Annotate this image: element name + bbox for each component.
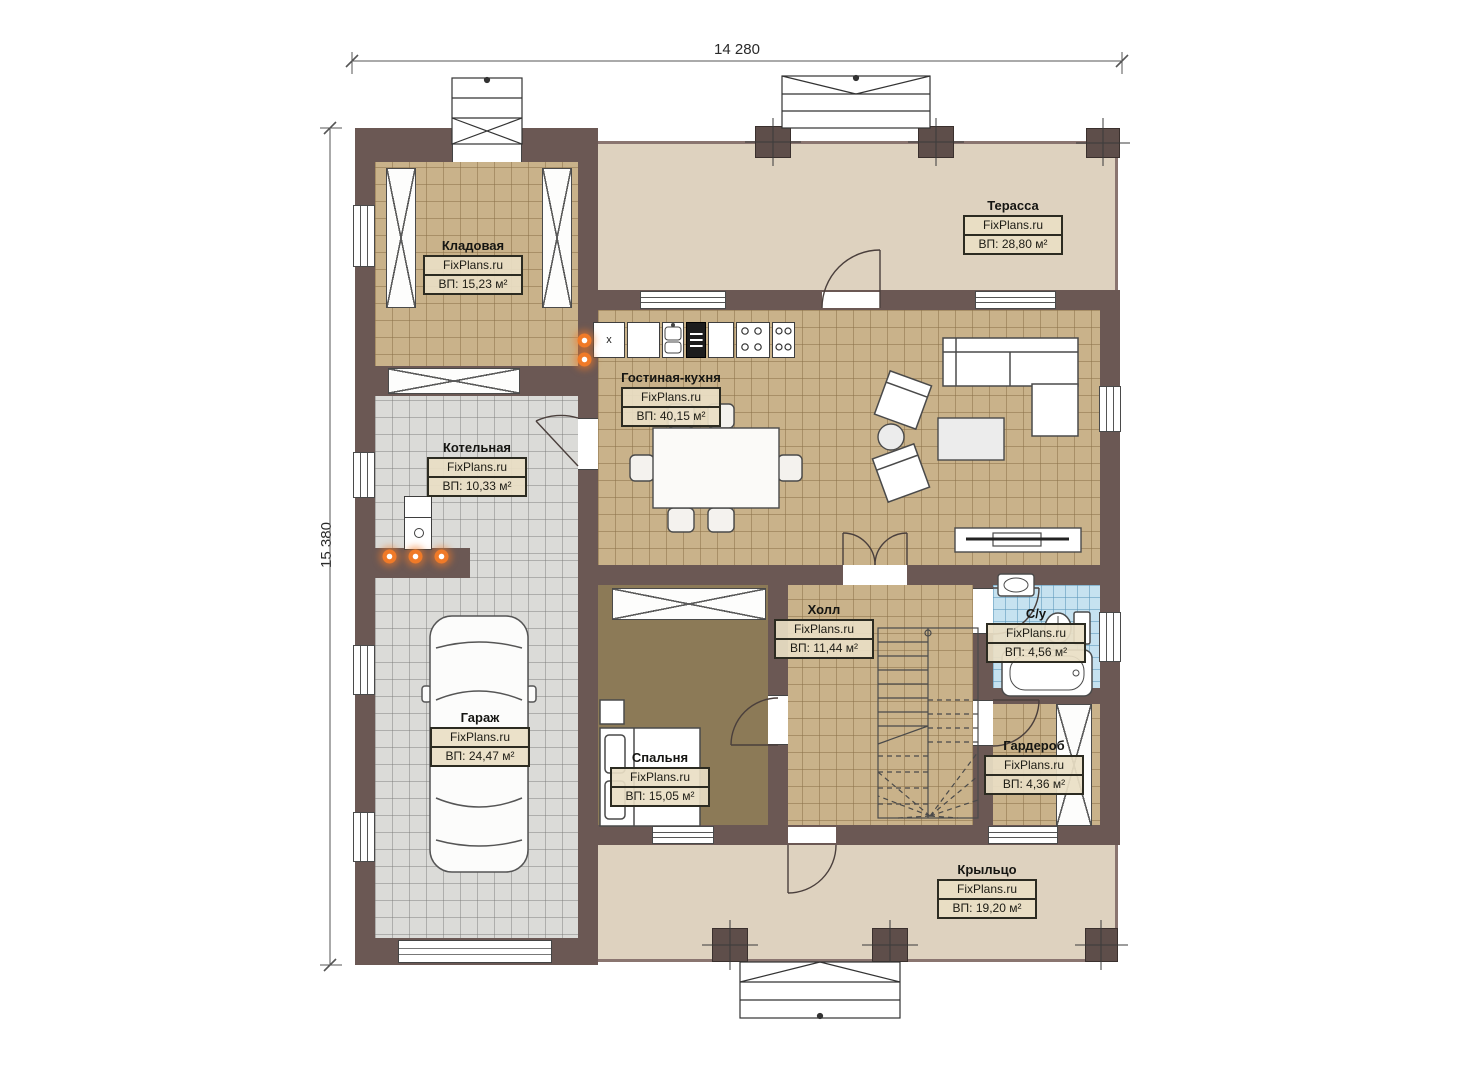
window bbox=[1099, 612, 1121, 662]
watermark: FixPlans.ru bbox=[988, 625, 1084, 644]
room-area: ВП: 40,15 м² bbox=[623, 408, 719, 425]
room-area: ВП: 28,80 м² bbox=[965, 236, 1061, 253]
porch-column bbox=[712, 928, 748, 962]
room-label-porch: Крыльцо FixPlans.ru ВП: 19,20 м² bbox=[925, 862, 1049, 919]
room-name: Крыльцо bbox=[957, 862, 1016, 877]
room-name: Спальня bbox=[632, 750, 688, 765]
cooktop-cabinet bbox=[736, 322, 770, 358]
window bbox=[640, 291, 726, 309]
watermark: FixPlans.ru bbox=[612, 769, 708, 788]
room-name: Гостиная-кухня bbox=[621, 370, 721, 385]
window bbox=[1099, 386, 1121, 432]
room-label-living-kitchen: Гостиная-кухня FixPlans.ru ВП: 40,15 м² bbox=[606, 370, 736, 427]
room-area: ВП: 11,44 м² bbox=[776, 640, 872, 657]
room-label-garage: Гараж FixPlans.ru ВП: 24,47 м² bbox=[420, 710, 540, 767]
door-opening-entry bbox=[788, 827, 836, 843]
door-opening-bedroom bbox=[768, 695, 788, 745]
watermark: FixPlans.ru bbox=[425, 257, 521, 276]
room-area: ВП: 19,20 м² bbox=[939, 900, 1035, 917]
dimension-height: 15 380 bbox=[318, 490, 336, 600]
room-name: Терасса bbox=[987, 198, 1039, 213]
room-area: ВП: 10,33 м² bbox=[429, 478, 525, 495]
room-name: Гардероб bbox=[1003, 738, 1064, 753]
terrace-parapet-right bbox=[1115, 141, 1118, 290]
window bbox=[353, 645, 375, 695]
room-name: С/у bbox=[1026, 606, 1046, 621]
garage-door-opening bbox=[398, 940, 552, 963]
watermark: FixPlans.ru bbox=[939, 881, 1035, 900]
watermark: FixPlans.ru bbox=[776, 621, 872, 640]
exterior-steps-top-center bbox=[782, 76, 930, 129]
room-area: ВП: 4,36 м² bbox=[986, 776, 1082, 793]
insulated-partition bbox=[388, 368, 520, 394]
radiator-icon bbox=[577, 352, 592, 367]
watermark: FixPlans.ru bbox=[429, 459, 525, 478]
kitchen-sink-cabinet bbox=[662, 322, 684, 358]
exterior-steps-bottom bbox=[740, 962, 900, 1019]
washer-mark: x bbox=[606, 334, 612, 346]
terrace-column bbox=[755, 126, 791, 158]
door-opening-hall-double bbox=[843, 565, 907, 585]
room-name: Котельная bbox=[443, 440, 511, 455]
door-opening-boiler bbox=[578, 418, 598, 470]
radiator-icon bbox=[577, 333, 592, 348]
boiler-icon bbox=[404, 496, 432, 550]
cooktop-cabinet bbox=[772, 322, 795, 358]
terrace-parapet-top bbox=[598, 141, 1118, 144]
room-label-wardrobe: Гардероб FixPlans.ru ВП: 4,36 м² bbox=[978, 738, 1090, 795]
window bbox=[353, 812, 375, 862]
room-label-terrace: Терасса FixPlans.ru ВП: 28,80 м² bbox=[952, 198, 1074, 255]
heater-icon bbox=[434, 549, 449, 564]
room-area: ВП: 15,05 м² bbox=[612, 788, 708, 805]
kitchen-cabinet bbox=[708, 322, 734, 358]
terrace-column bbox=[1086, 128, 1120, 158]
terrace-column bbox=[918, 126, 954, 158]
washing-machine-icon: x bbox=[593, 322, 625, 358]
window bbox=[353, 452, 375, 498]
watermark: FixPlans.ru bbox=[432, 729, 528, 748]
window bbox=[353, 205, 375, 267]
room-name: Гараж bbox=[461, 710, 500, 725]
window bbox=[988, 826, 1058, 844]
dimension-width: 14 280 bbox=[687, 41, 787, 58]
storage-shelving bbox=[542, 168, 572, 308]
window bbox=[975, 291, 1056, 309]
porch-column bbox=[1085, 928, 1118, 962]
window bbox=[652, 826, 714, 844]
wall-mid-left bbox=[595, 565, 843, 585]
floor-plan-canvas: x bbox=[0, 0, 1473, 1080]
room-label-bathroom: С/у FixPlans.ru ВП: 4,56 м² bbox=[980, 606, 1092, 663]
wall-bath-wardrobe bbox=[975, 688, 1100, 704]
door-opening-terrace bbox=[822, 292, 880, 308]
bedroom-closet bbox=[612, 588, 766, 620]
room-label-storage: Кладовая FixPlans.ru ВП: 15,23 м² bbox=[412, 238, 534, 295]
wall-mid-right bbox=[907, 565, 1120, 585]
door-opening-storage bbox=[452, 130, 522, 162]
watermark: FixPlans.ru bbox=[965, 217, 1061, 236]
room-area: ВП: 4,56 м² bbox=[988, 644, 1084, 661]
room-name: Холл bbox=[808, 602, 841, 617]
room-area: ВП: 15,23 м² bbox=[425, 276, 521, 293]
oven-icon bbox=[686, 322, 706, 358]
room-name: Кладовая bbox=[442, 238, 504, 253]
room-area: ВП: 24,47 м² bbox=[432, 748, 528, 765]
room-label-boiler: Котельная FixPlans.ru ВП: 10,33 м² bbox=[416, 440, 538, 497]
heater-icon bbox=[382, 549, 397, 564]
watermark: FixPlans.ru bbox=[986, 757, 1082, 776]
porch-column bbox=[872, 928, 908, 962]
room-label-hall: Холл FixPlans.ru ВП: 11,44 м² bbox=[766, 602, 882, 659]
kitchen-cabinet bbox=[627, 322, 660, 358]
heater-icon bbox=[408, 549, 423, 564]
watermark: FixPlans.ru bbox=[623, 389, 719, 408]
porch-edge-bottom bbox=[598, 959, 1118, 962]
room-label-bedroom: Спальня FixPlans.ru ВП: 15,05 м² bbox=[600, 750, 720, 807]
